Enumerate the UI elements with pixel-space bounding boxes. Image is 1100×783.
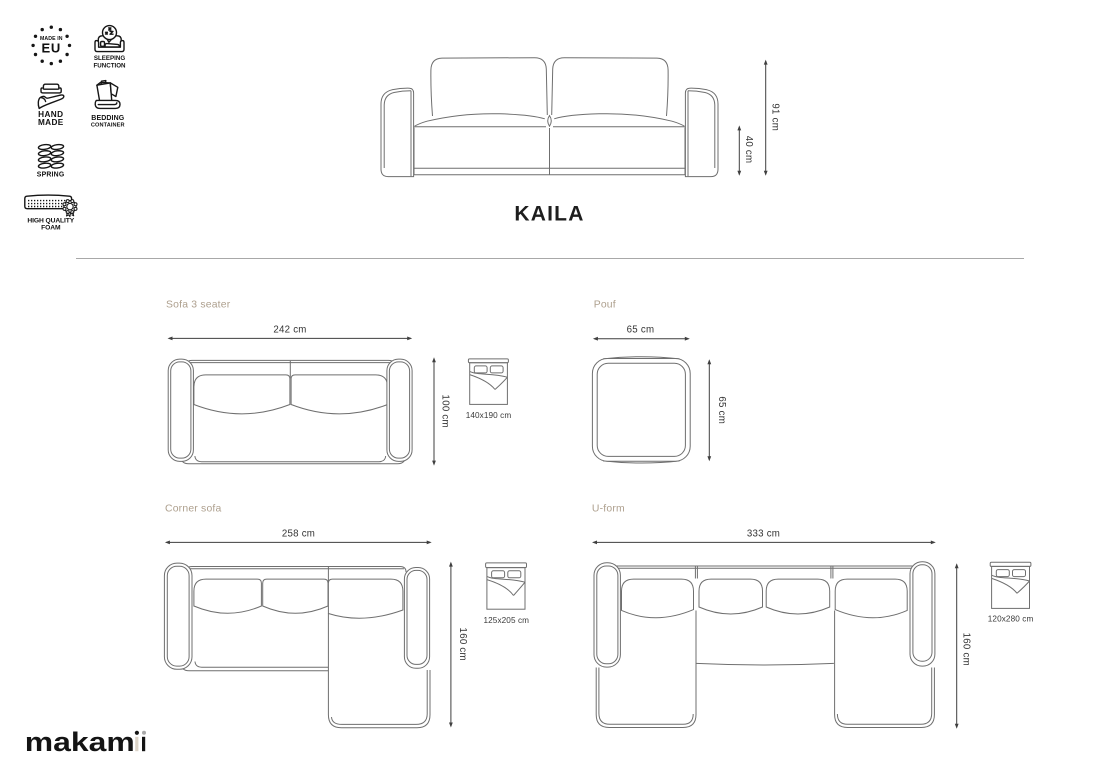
svg-text:65 cm: 65 cm	[627, 325, 655, 336]
svg-text:Corner sofa: Corner sofa	[165, 504, 222, 515]
svg-text:Pouf: Pouf	[594, 300, 616, 311]
svg-text:333 cm: 333 cm	[747, 529, 780, 540]
svg-text:160 cm: 160 cm	[961, 633, 972, 666]
svg-text:CONTAINER: CONTAINER	[91, 122, 125, 128]
svg-text:makam: makam	[25, 727, 135, 757]
svg-text:258 cm: 258 cm	[282, 529, 315, 540]
svg-text:FOAM: FOAM	[41, 225, 61, 232]
svg-text:125x205 cm: 125x205 cm	[483, 616, 529, 625]
svg-text:BEDDING: BEDDING	[91, 115, 124, 122]
svg-text:Sofa 3 seater: Sofa 3 seater	[166, 300, 231, 311]
svg-text:242 cm: 242 cm	[273, 325, 306, 336]
svg-text:65 cm: 65 cm	[716, 396, 727, 424]
svg-text:120x280 cm: 120x280 cm	[988, 614, 1034, 623]
svg-text:40 cm: 40 cm	[743, 136, 754, 164]
svg-text:SLEEPING: SLEEPING	[94, 55, 125, 62]
svg-text:U-form: U-form	[592, 504, 625, 515]
svg-text:100 cm: 100 cm	[440, 395, 451, 428]
svg-text:91 cm: 91 cm	[770, 103, 781, 131]
svg-text:SPRING: SPRING	[37, 171, 65, 178]
svg-text:140x190 cm: 140x190 cm	[466, 411, 512, 420]
svg-text:HIGH QUALITY: HIGH QUALITY	[27, 217, 74, 224]
svg-text:160 cm: 160 cm	[457, 628, 468, 661]
svg-text:FUNCTION: FUNCTION	[94, 62, 126, 69]
svg-text:KAILA: KAILA	[514, 203, 584, 226]
svg-text:MADE: MADE	[38, 118, 64, 127]
svg-text:EU: EU	[41, 41, 61, 56]
